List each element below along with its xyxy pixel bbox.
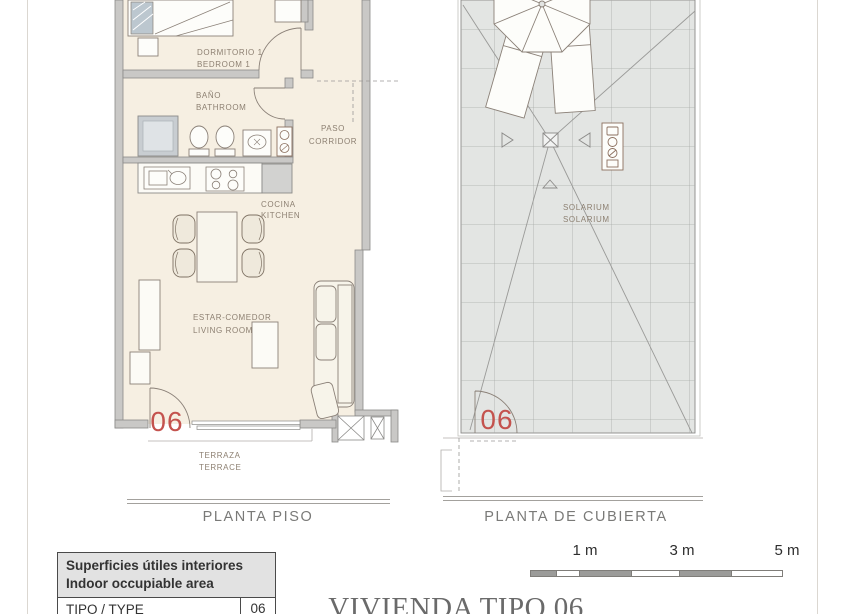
areas-header-en: Indoor occupiable area [66, 575, 267, 593]
scale-label-5m: 5 m [762, 542, 812, 559]
floor-unit-number: 06 [150, 406, 183, 437]
scale-segment [731, 570, 783, 577]
living-label-es: ESTAR-COMEDOR [193, 313, 271, 322]
washbasin [243, 130, 271, 156]
dining-table [197, 212, 237, 282]
solarium-label-es: SOLARIUM [563, 203, 610, 212]
bidet [215, 126, 235, 156]
cabinet [130, 352, 150, 384]
solarium-label-en: SOLARIUM [563, 215, 610, 224]
ac-units [338, 416, 384, 440]
toilet [189, 126, 209, 156]
type-row-label: TIPO / TYPE [58, 602, 240, 614]
bedroom-label-es: DORMITORIO 1 [197, 48, 263, 57]
areas-table-header: Superficies útiles interiores Indoor occ… [58, 553, 275, 598]
scale-label-1m: 1 m [560, 542, 610, 559]
floor-plan-title: PLANTA PISO [128, 509, 388, 525]
scale-label-3m: 3 m [657, 542, 707, 559]
coffee-table [252, 322, 278, 368]
scale-segment [530, 570, 557, 577]
bed [128, 0, 233, 36]
corridor-label-es: PASO [321, 124, 345, 133]
chair [173, 249, 195, 277]
sideboard [139, 280, 160, 350]
type-row-value: 06 [240, 598, 275, 614]
roof-lower-dashes [459, 438, 518, 493]
chair [173, 215, 195, 243]
kitchen-label-en: KITCHEN [261, 211, 300, 220]
areas-header-es: Superficies útiles interiores [66, 557, 267, 575]
kitchen-label-es: COCINA [261, 200, 296, 209]
sheet-title: VIVIENDA TIPO 06 [300, 592, 612, 614]
scale-segment [631, 570, 680, 577]
chair [242, 249, 264, 277]
corridor-label-en: CORRIDOR [309, 137, 357, 146]
bathroom-label-es: BAÑO [196, 91, 221, 100]
exterior-mask [363, 250, 400, 430]
nightstand [138, 38, 158, 56]
scale-segment [579, 570, 632, 577]
sofa [310, 281, 354, 420]
terrace-glazing [192, 421, 300, 430]
terrace-label-es: TERRAZA [199, 451, 241, 460]
bedroom-label-en: BEDROOM 1 [197, 60, 250, 69]
areas-table: Superficies útiles interiores Indoor occ… [57, 552, 276, 614]
wardrobe [275, 0, 301, 22]
page-border-left [27, 0, 28, 614]
roof-plan-title: PLANTA DE CUBIERTA [446, 509, 706, 525]
stove [206, 167, 244, 191]
roof-unit-number: 06 [480, 404, 513, 435]
bathroom-label-en: BATHROOM [196, 103, 246, 112]
floor-plan-drawing: DORMITORIO 1 BEDROOM 1 BAÑO BATHROOM PAS… [108, 0, 400, 475]
roof-lower-lines [441, 438, 703, 491]
table-row: TIPO / TYPE 06 [58, 598, 275, 614]
floor-plan-rule [127, 499, 390, 504]
vent-grille [602, 123, 623, 170]
living-label-en: LIVING ROOM [193, 326, 253, 335]
scale-segment [556, 570, 580, 577]
scale-segment [679, 570, 732, 577]
shower [138, 116, 178, 156]
roof-plan-rule [443, 496, 703, 501]
kitchen-sink [144, 167, 190, 189]
roof-plan-drawing: SOLARIUM SOLARIUM 06 [438, 0, 723, 495]
drawing-sheet: DORMITORIO 1 BEDROOM 1 BAÑO BATHROOM PAS… [0, 0, 850, 614]
terrace-label-en: TERRACE [199, 463, 241, 472]
fridge [262, 164, 292, 193]
page-border-right [817, 0, 818, 614]
roof-drain [543, 133, 558, 147]
washer-column [277, 127, 292, 156]
